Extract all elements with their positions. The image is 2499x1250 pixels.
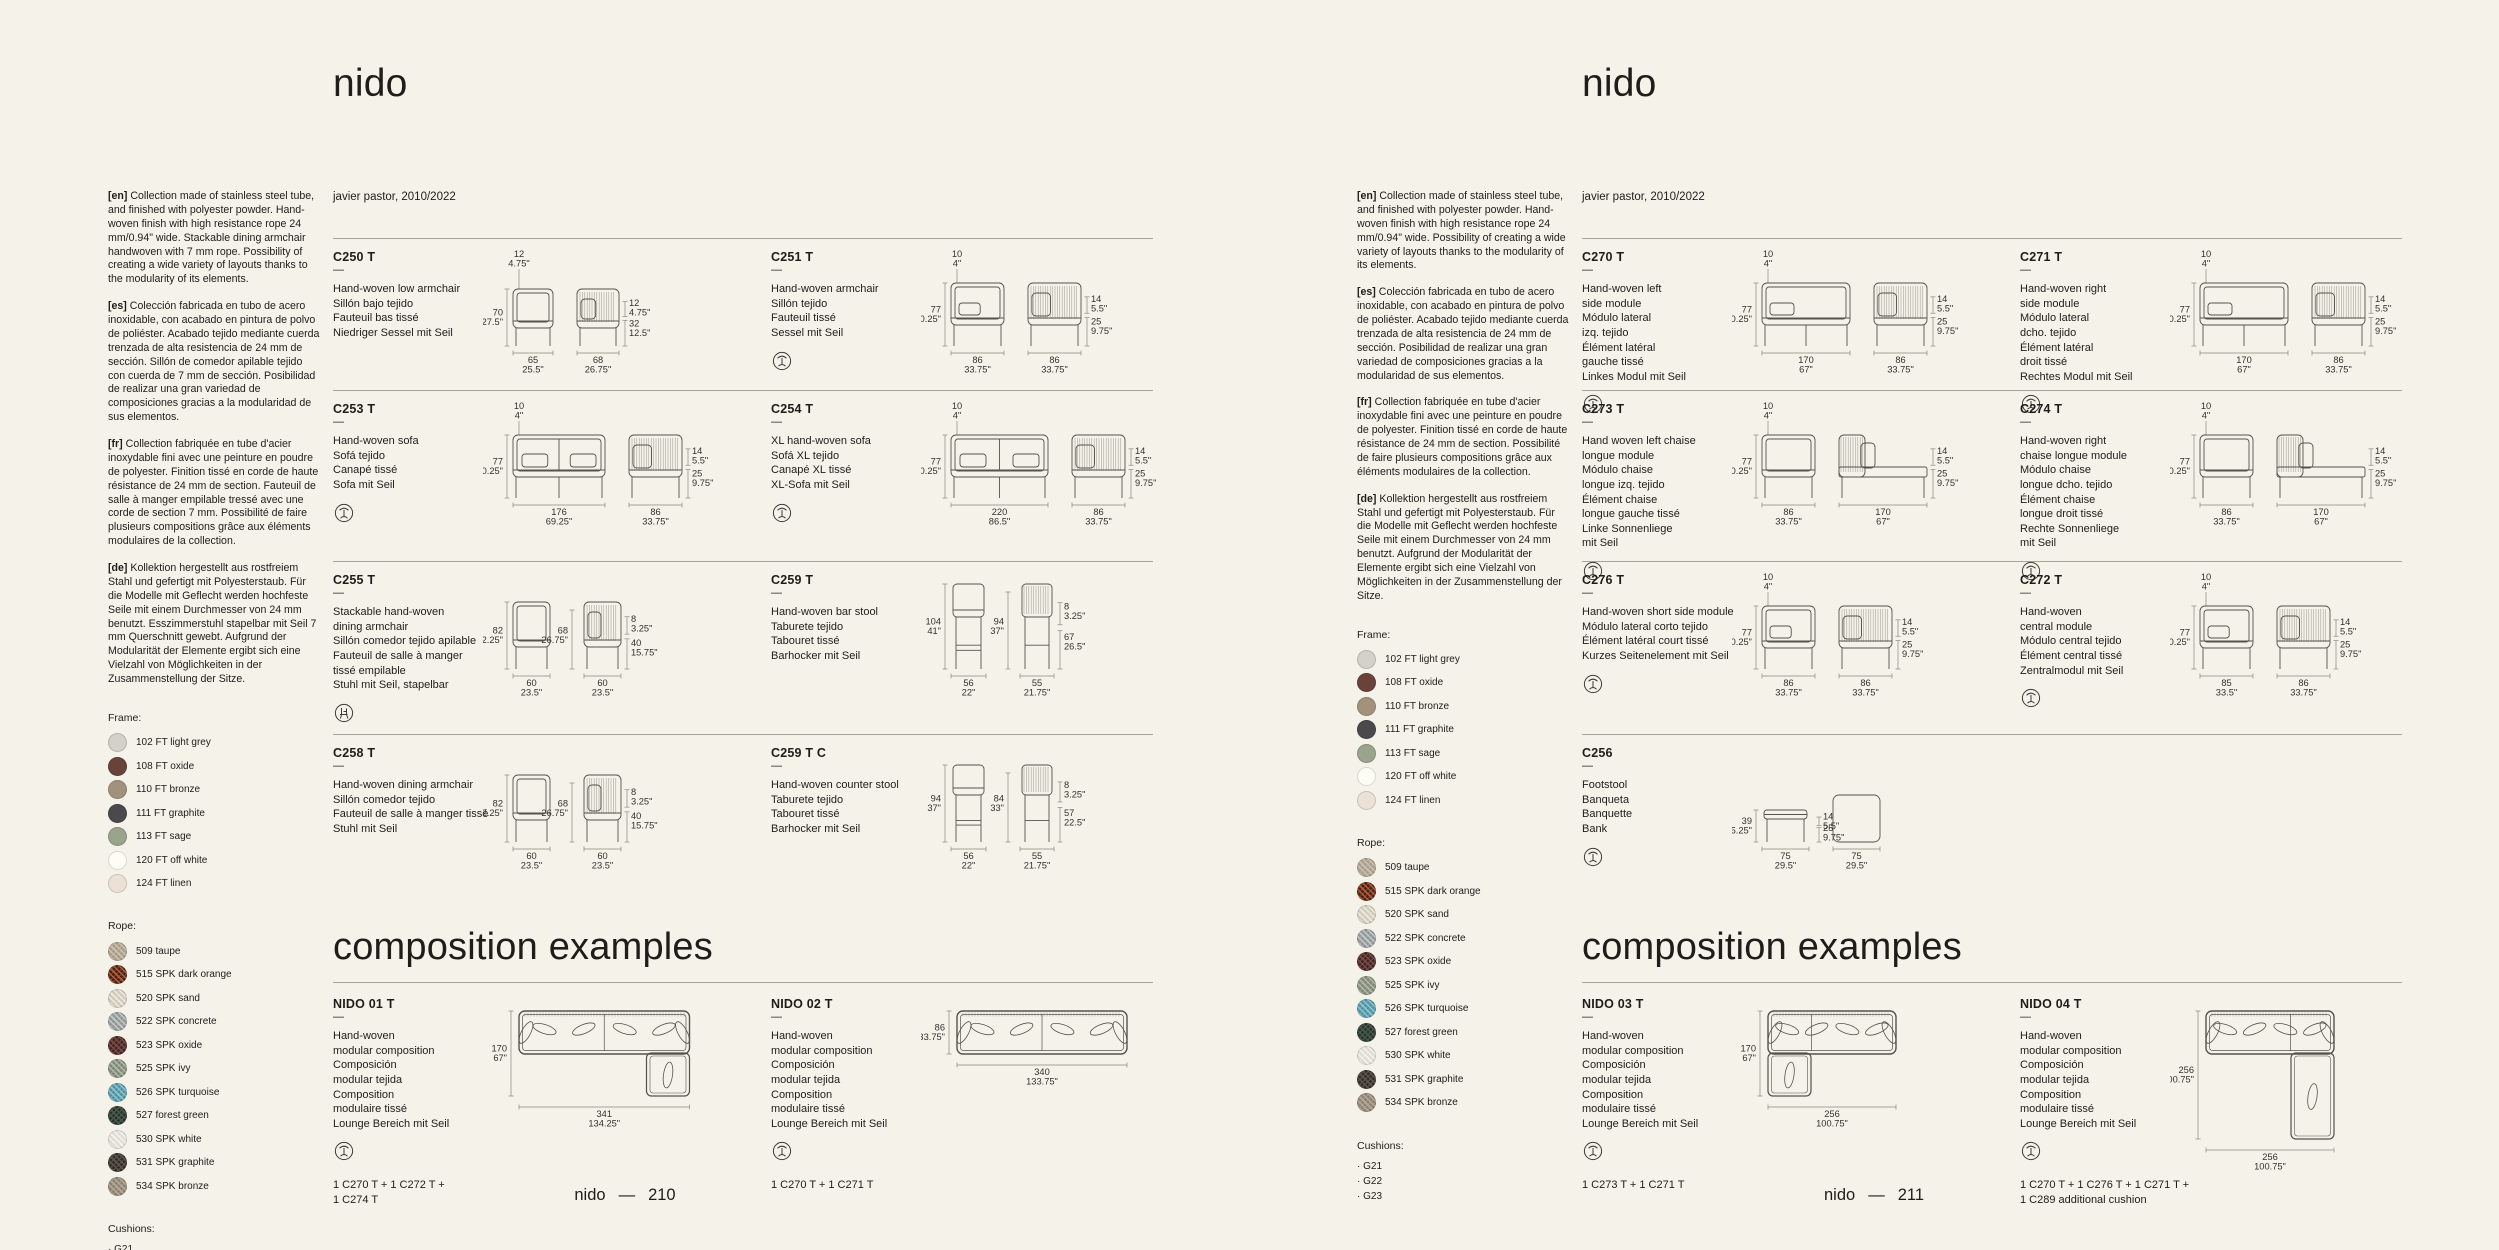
product-diagram: 7730.25"104"145.5"259.75"17669.25"8633.7… <box>483 402 724 530</box>
frame-swatch-color <box>108 757 127 776</box>
product-description-line: Taburete tejido <box>771 620 921 635</box>
dim-label: 83.25" <box>1064 780 1085 800</box>
product-code: C250 T <box>333 250 483 264</box>
dim-label: 145.5" <box>1902 617 1918 637</box>
rope-swatch-color <box>1357 858 1376 877</box>
composition-description-line: Lounge Bereich mit Seil <box>1582 1117 1732 1132</box>
dim-label: 259.75" <box>1937 469 1958 489</box>
swatch-label: 509 taupe <box>1385 862 1430 873</box>
dim-label: 17067" <box>1798 355 1814 375</box>
composition-description-line: Hand-woven <box>1582 1029 1732 1044</box>
product-description-line: Hand-woven armchair <box>771 282 921 297</box>
outdoor-feature <box>771 1140 921 1162</box>
dim-label: 8232.25" <box>483 626 503 646</box>
intro-text: Kollektion hergestellt aus rostfreiem St… <box>1357 493 1562 602</box>
frame-swatch-color <box>1357 767 1376 786</box>
dim-label: 340133.75" <box>1026 1067 1058 1087</box>
swatch-label: 523 SPK oxide <box>1385 956 1451 967</box>
product-cell: C253 T—Hand-woven sofaSofá tejidoCanapé … <box>333 402 771 561</box>
product-rows: C270 T—Hand-woven leftside moduleMódulo … <box>1582 238 2402 912</box>
swatch-row: 113 FT sage <box>1357 742 1569 766</box>
swatch-label: 531 SPK graphite <box>136 1157 214 1168</box>
dim-label: 104" <box>952 250 962 269</box>
swatch-row: 509 taupe <box>108 939 320 963</box>
product-description-line: Hand woven left chaise <box>1582 434 1732 449</box>
outdoor-feature <box>771 350 921 372</box>
rope-swatch-color <box>108 1083 127 1102</box>
product-cell: C272 T—Hand-wovencentral moduleMódulo ce… <box>2020 573 2402 734</box>
swatch-label: 124 FT linen <box>136 878 191 889</box>
composition-cell: NIDO 03 T—Hand-wovenmodular compositionC… <box>1582 997 2020 1208</box>
product-description-line: chaise longue module <box>2020 449 2170 464</box>
footer-page-number: 211 <box>1898 1186 1924 1204</box>
product-diagram-area: 7730.25"104"145.5"259.75"17067"8633.75" <box>1732 250 2020 390</box>
product-description-line: longue dcho. tejido <box>2020 478 2170 493</box>
swatch-label: 110 FT bronze <box>1385 701 1449 712</box>
product-description-line: Élément chaise <box>2020 493 2170 508</box>
swatch-row: 124 FT linen <box>108 872 320 896</box>
product-cell: C254 T—XL hand-woven sofaSofá XL tejidoC… <box>771 402 1153 561</box>
product-diagram: 7730.25"104"145.5"259.75"8633.75"8633.75… <box>1732 573 1934 701</box>
dim-label: 104" <box>1763 250 1773 269</box>
dim-label: 5622" <box>962 678 976 698</box>
dim-label: 8633.75" <box>1775 507 1802 527</box>
swatch-row: 534 SPK bronze <box>1357 1091 1569 1115</box>
dim-label: 6023.5" <box>592 678 613 698</box>
product-description-line: dining armchair <box>333 620 483 635</box>
intro-paragraph: [es] Colección fabricada en tubo de acer… <box>108 300 320 425</box>
dim-label: 5521.75" <box>1024 851 1051 871</box>
byline: javier pastor, 2010/2022 <box>333 191 1153 238</box>
dim-label: 145.5" <box>2375 294 2391 314</box>
composition-description-line: Composición <box>1582 1058 1732 1073</box>
product-dash: — <box>771 416 921 428</box>
swatch-label: 525 SPK ivy <box>136 1063 190 1074</box>
intro-language-tag: [es] <box>1357 286 1376 298</box>
product-description-line: Sofá XL tejido <box>771 449 921 464</box>
composition-description-line: Hand-woven <box>333 1029 483 1044</box>
frame-swatch-list: 102 FT light grey108 FT oxide110 FT bron… <box>108 731 320 896</box>
product-description-line: Canapé XL tissé <box>771 463 921 478</box>
rope-swatch-color <box>108 965 127 984</box>
composition-description-line: modular composition <box>2020 1044 2170 1059</box>
product-description-line: Módulo chaise <box>2020 463 2170 478</box>
product-diagram-area: 7027.5"124.75"124.75"3212.5"6525.5"6826.… <box>483 250 771 390</box>
dim-label: 8633.75" <box>1041 355 1068 375</box>
composition-description-line: Composición <box>2020 1058 2170 1073</box>
product-description-line: Stackable hand-woven <box>333 605 483 620</box>
swatch-row: 520 SPK sand <box>1357 903 1569 927</box>
composition-description-line: Lounge Bereich mit Seil <box>2020 1117 2170 1132</box>
cushions-label: Cushions: <box>1357 1140 1569 1152</box>
rope-swatch-color <box>1357 1070 1376 1089</box>
dim-label: 4015.75" <box>631 638 658 658</box>
product-diagram-area: 7730.25"104"145.5"259.75"17067"8633.75" <box>2170 250 2407 390</box>
product-code: C251 T <box>771 250 921 264</box>
product-description-line: Élément chaise <box>1582 493 1732 508</box>
dim-label: 3212.5" <box>629 319 650 339</box>
swatch-row: 113 FT sage <box>108 825 320 849</box>
intro-language-tag: [fr] <box>1357 396 1372 408</box>
swatch-label: 526 SPK turquoise <box>1385 1003 1468 1014</box>
swatch-label: 527 forest green <box>1385 1027 1458 1038</box>
frame-label: Frame: <box>1357 629 1569 641</box>
product-dash: — <box>1582 760 1732 772</box>
rope-swatch-color <box>108 989 127 1008</box>
composition-dash: — <box>771 1011 921 1023</box>
intro-paragraph: [de] Kollektion hergestellt aus rostfrei… <box>108 562 320 687</box>
product-description-line: Élément central tissé <box>2020 649 2170 664</box>
rope-swatch-list: 509 taupe515 SPK dark orange520 SPK sand… <box>108 939 320 1198</box>
product-info: C254 T—XL hand-woven sofaSofá XL tejidoC… <box>771 402 921 561</box>
product-cell: C255 T—Stackable hand-wovendining armcha… <box>333 573 771 734</box>
swatch-label: 526 SPK turquoise <box>136 1087 219 1098</box>
product-description-line: droit tissé <box>2020 355 2170 370</box>
composition-info: NIDO 04 T—Hand-wovenmodular compositionC… <box>2020 997 2170 1208</box>
dim-label: 7730.25" <box>921 305 941 325</box>
composition-diagram-area: 17067"256100.75" <box>1732 997 2020 1208</box>
product-dash: — <box>1582 264 1732 276</box>
composition-plan-diagram: 17067"341134.25" <box>483 997 708 1140</box>
product-description-line: Tabouret tissé <box>771 634 921 649</box>
byline: javier pastor, 2010/2022 <box>1582 191 2402 238</box>
product-description-line: side module <box>2020 297 2170 312</box>
composition-code: NIDO 03 T <box>1582 997 1732 1011</box>
product-cell: C259 T—Hand-woven bar stoolTaburete teji… <box>771 573 1153 734</box>
intro-language-tag: [en] <box>1357 190 1376 202</box>
product-code: C254 T <box>771 402 921 416</box>
composition-description-line: modulaire tissé <box>771 1102 921 1117</box>
swatch-row: 525 SPK ivy <box>108 1057 320 1081</box>
dim-label: 259.75" <box>2375 317 2396 337</box>
sidebar: [en] Collection made of stainless steel … <box>1357 190 1569 1204</box>
product-description-line: Hand-woven <box>2020 605 2170 620</box>
swatch-row: 120 FT off white <box>108 848 320 872</box>
footer-page-number: 210 <box>648 1186 676 1204</box>
composition-heading: composition examples <box>333 926 1153 969</box>
product-cell: C270 T—Hand-woven leftside moduleMódulo … <box>1582 250 2020 390</box>
composition-description-line: Composition <box>2020 1088 2170 1103</box>
stackable-feature <box>333 702 483 724</box>
dim-label: 259.75" <box>2340 640 2361 660</box>
product-description-line: XL hand-woven sofa <box>771 434 921 449</box>
dim-label: 7027.5" <box>483 308 503 328</box>
product-description-line: Sillón comedor tejido apilable <box>333 634 483 649</box>
intro-language-tag: [en] <box>108 190 127 202</box>
product-info: C273 T—Hand woven left chaiselongue modu… <box>1582 402 1732 561</box>
dim-label: 5722.5" <box>1064 808 1085 828</box>
dim-label: 145.5" <box>2340 617 2356 637</box>
composition-description-line: Lounge Bereich mit Seil <box>771 1117 921 1132</box>
product-diagram-area: 9437"8433"83.25"5722.5"5622"5521.75" <box>921 746 1153 912</box>
intro-language-tag: [de] <box>108 562 127 574</box>
dim-label: 259.75" <box>1091 317 1112 337</box>
composition-diagram-area: 256100.75"256100.75" <box>2170 997 2402 1208</box>
dim-label: 8633.75" <box>1085 507 1112 527</box>
swatch-row: 530 SPK white <box>108 1127 320 1151</box>
product-dash: — <box>771 760 921 772</box>
composition-dash: — <box>2020 1011 2170 1023</box>
covered-outdoor-icon <box>1582 1140 1604 1162</box>
product-code: C276 T <box>1582 573 1732 587</box>
dim-label: 22086.5" <box>989 507 1010 527</box>
swatch-row: 120 FT off white <box>1357 765 1569 789</box>
intro-text: Collection fabriquée en tube d'acier ino… <box>108 438 318 547</box>
product-diagram: 7730.25"104"145.5"259.75"8633.75"17067" <box>1732 402 1969 530</box>
rope-swatch-color <box>108 942 127 961</box>
intro-paragraph: [en] Collection made of stainless steel … <box>1357 190 1569 273</box>
intro-paragraphs: [en] Collection made of stainless steel … <box>108 190 320 687</box>
swatch-label: 124 FT linen <box>1385 795 1440 806</box>
frame-swatch-color <box>108 804 127 823</box>
product-description-line: Stuhl mit Seil <box>333 822 483 837</box>
product-description-line: Sofa mit Seil <box>333 478 483 493</box>
product-description-line: longue module <box>1582 449 1732 464</box>
covered-outdoor-icon <box>1582 673 1604 695</box>
dim-label: 17669.25" <box>546 507 573 527</box>
swatch-row: 527 forest green <box>108 1104 320 1128</box>
dim-label: 259.75" <box>1902 640 1923 660</box>
swatch-label: 531 SPK graphite <box>1385 1074 1463 1085</box>
swatch-label: 530 SPK white <box>1385 1050 1451 1061</box>
composition-description-line: Composition <box>771 1088 921 1103</box>
swatch-label: 113 FT sage <box>136 831 191 842</box>
swatch-row: 102 FT light grey <box>108 731 320 755</box>
product-description-line: Footstool <box>1582 778 1732 793</box>
rope-swatch-color <box>1357 1023 1376 1042</box>
dim-label: 145.5" <box>1937 446 1953 466</box>
composition-code: NIDO 04 T <box>2020 997 2170 1011</box>
product-diagram: 7730.25"104"145.5"259.75"17067"8633.75" <box>1732 250 1969 378</box>
dim-label: 7730.25" <box>2170 305 2190 325</box>
intro-paragraph: [fr] Collection fabriquée en tube d'acie… <box>108 438 320 549</box>
product-diagram: 7730.25"104"145.5"259.75"8633.75"8633.75… <box>921 250 1123 378</box>
outdoor-feature <box>771 502 921 524</box>
composition-heading: composition examples <box>1582 926 2402 969</box>
rope-swatch-color <box>108 1106 127 1125</box>
dim-label: 9437" <box>990 617 1004 637</box>
rope-swatch-color <box>108 1059 127 1078</box>
dim-label: 7529.5" <box>1775 851 1796 871</box>
covered-outdoor-icon <box>2020 687 2042 709</box>
swatch-row: 102 FT light grey <box>1357 648 1569 672</box>
composition-description-line: modulaire tissé <box>1582 1102 1732 1117</box>
composition-dash: — <box>1582 1011 1732 1023</box>
dim-label: 256100.75" <box>1816 1109 1848 1129</box>
composition-info: NIDO 02 T—Hand-wovenmodular compositionC… <box>771 997 921 1208</box>
intro-text: Colección fabricada en tubo de acero ino… <box>1357 286 1568 381</box>
rope-swatch-color <box>1357 999 1376 1018</box>
product-info: C270 T—Hand-woven leftside moduleMódulo … <box>1582 250 1732 390</box>
dim-label: 6525.5" <box>522 355 543 375</box>
intro-language-tag: [es] <box>108 300 127 312</box>
swatch-label: 522 SPK concrete <box>1385 933 1466 944</box>
intro-paragraph: [fr] Collection fabriquée en tube d'acie… <box>1357 396 1569 479</box>
product-description-line: izq. tejido <box>1582 326 1732 341</box>
composition-description-line: modular composition <box>771 1044 921 1059</box>
page-title: nido <box>333 62 408 106</box>
composition-description-line: modular tejida <box>771 1073 921 1088</box>
product-description-line: Hand-woven low armchair <box>333 282 483 297</box>
product-info: C271 T—Hand-woven rightside moduleMódulo… <box>2020 250 2170 390</box>
product-diagram-area: 10441"9437"83.25"6726.5"5622"5521.75" <box>921 573 1153 734</box>
dim-label: 8633.75" <box>1852 678 1879 698</box>
product-cell: C259 T C—Hand-woven counter stoolTaburet… <box>771 746 1153 912</box>
product-cell: C251 T—Hand-woven armchairSillón tejidoF… <box>771 250 1153 390</box>
product-description-line: Fauteuil de salle à manger tissé <box>333 807 483 822</box>
product-description-line: Sofá tejido <box>333 449 483 464</box>
rope-swatch-color <box>1357 1046 1376 1065</box>
dim-label: 8633.75" <box>642 507 669 527</box>
product-cell: C273 T—Hand woven left chaiselongue modu… <box>1582 402 2020 561</box>
swatch-row: 509 taupe <box>1357 856 1569 880</box>
swatch-row: 526 SPK turquoise <box>1357 997 1569 1021</box>
composition-row: NIDO 03 T—Hand-wovenmodular compositionC… <box>1582 982 2402 1208</box>
composition-plan-diagram: 256100.75"256100.75" <box>2170 997 2352 1183</box>
swatch-label: 108 FT oxide <box>136 761 194 772</box>
product-dash: — <box>771 264 921 276</box>
product-diagram: 7730.25"104"145.5"259.75"8533.5"8633.75" <box>2170 573 2372 701</box>
dim-label: 8633.75" <box>2290 678 2317 698</box>
dim-label: 341134.25" <box>588 1109 620 1129</box>
product-diagram: 3915.25"145.5"259.75"7529.5"7529.5" <box>1732 746 1922 874</box>
page-footer: nido—210 <box>0 1186 1250 1205</box>
outdoor-feature <box>2020 1140 2170 1162</box>
product-description-line: XL-Sofa mit Seil <box>771 478 921 493</box>
product-description-line: Fauteuil tissé <box>771 311 921 326</box>
intro-text: Collection made of stainless steel tube,… <box>108 190 314 285</box>
dim-label: 8633.75" <box>921 1023 945 1043</box>
dim-label: 8533.5" <box>2216 678 2237 698</box>
swatch-row: 111 FT graphite <box>108 801 320 825</box>
product-diagram-area: 7730.25"104"145.5"259.75"8633.75"8633.75… <box>921 250 1153 390</box>
rope-swatch-color <box>1357 882 1376 901</box>
frame-swatch-color <box>108 780 127 799</box>
composition-description-line: Composición <box>333 1058 483 1073</box>
product-info: C250 T—Hand-woven low armchairSillón baj… <box>333 250 483 390</box>
dim-label: 104" <box>2201 250 2211 269</box>
composition-description-line: modular composition <box>1582 1044 1732 1059</box>
product-description-line: Hand-woven left <box>1582 282 1732 297</box>
product-row: C250 T—Hand-woven low armchairSillón baj… <box>333 238 1153 390</box>
product-description-line: Linke Sonnenliege <box>1582 522 1732 537</box>
product-description-line: Barhocker mit Seil <box>771 822 921 837</box>
product-description-line: Banqueta <box>1582 793 1732 808</box>
dim-label: 104" <box>1763 573 1773 592</box>
product-dash: — <box>1582 416 1732 428</box>
dim-label: 8633.75" <box>2213 507 2240 527</box>
dim-label: 7730.25" <box>2170 457 2190 477</box>
footer-collection: nido <box>574 1186 605 1204</box>
swatch-row: 110 FT bronze <box>1357 695 1569 719</box>
composition-code: NIDO 01 T <box>333 997 483 1011</box>
rope-swatch-color <box>108 1130 127 1149</box>
product-cell: C274 T—Hand-woven rightchaise longue mod… <box>2020 402 2402 561</box>
composition-description-line: modular tejida <box>333 1073 483 1088</box>
product-description-line: Élément latéral <box>2020 341 2170 356</box>
composition-description-line: Lounge Bereich mit Seil <box>333 1117 483 1132</box>
product-description-line: Sillón bajo tejido <box>333 297 483 312</box>
product-description-line: longue droit tissé <box>2020 507 2170 522</box>
product-info: C274 T—Hand-woven rightchaise longue mod… <box>2020 402 2170 561</box>
rope-swatch-list: 509 taupe515 SPK dark orange520 SPK sand… <box>1357 856 1569 1115</box>
swatch-label: 515 SPK dark orange <box>136 969 232 980</box>
product-description-line: gauche tissé <box>1582 355 1732 370</box>
product-diagram: 10441"9437"83.25"6726.5"5622"5521.75" <box>921 573 1096 701</box>
intro-paragraph: [es] Colección fabricada en tubo de acer… <box>1357 286 1569 383</box>
intro-paragraph: [de] Kollektion hergestellt aus rostfrei… <box>1357 493 1569 604</box>
product-description-line: Hand-woven right <box>2020 434 2170 449</box>
product-description-line: Módulo lateral <box>2020 311 2170 326</box>
product-diagram-area: 7730.25"104"145.5"259.75"8633.75"8633.75… <box>1732 573 2020 734</box>
intro-language-tag: [de] <box>1357 493 1376 505</box>
product-diagram-area: 7730.25"104"145.5"259.75"8633.75"17067" <box>2170 402 2407 561</box>
product-rows: C250 T—Hand-woven low armchairSillón baj… <box>333 238 1153 912</box>
product-description-line: Stuhl mit Seil, stapelbar <box>333 678 483 693</box>
composition-info: NIDO 03 T—Hand-wovenmodular compositionC… <box>1582 997 1732 1208</box>
rope-label: Rope: <box>108 920 320 932</box>
outdoor-feature <box>333 502 483 524</box>
dim-label: 17067" <box>1740 1044 1756 1064</box>
composition-plan-diagram: 8633.75"340133.75" <box>921 997 1145 1098</box>
dim-label: 7730.25" <box>921 457 941 477</box>
rope-swatch-color <box>108 1153 127 1172</box>
swatch-label: 522 SPK concrete <box>136 1016 217 1027</box>
dim-label: 256100.75" <box>2254 1152 2286 1172</box>
composition-description-line: Composition <box>1582 1088 1732 1103</box>
dim-label: 9437" <box>927 794 941 814</box>
intro-text: Collection made of stainless steel tube,… <box>1357 190 1566 271</box>
dim-label: 6023.5" <box>521 851 542 871</box>
product-code: C256 <box>1582 746 1732 760</box>
cushion-code: · G21 <box>1357 1159 1569 1174</box>
product-cell: C276 T—Hand-woven short side moduleMódul… <box>1582 573 2020 734</box>
composition-code: NIDO 02 T <box>771 997 921 1011</box>
product-info: C253 T—Hand-woven sofaSofá tejidoCanapé … <box>333 402 483 561</box>
composition-plan-diagram: 17067"256100.75" <box>1732 997 1914 1140</box>
dim-label: 17067" <box>2236 355 2252 375</box>
product-description-line: Módulo lateral corto tejido <box>1582 620 1732 635</box>
product-description-line: Hand-woven right <box>2020 282 2170 297</box>
outdoor-feature <box>1582 673 1732 695</box>
cushions-label: Cushions: <box>108 1223 320 1235</box>
frame-swatch-color <box>1357 720 1376 739</box>
product-row: C276 T—Hand-woven short side moduleMódul… <box>1582 561 2402 734</box>
stackable-icon <box>333 702 355 724</box>
swatch-label: 120 FT off white <box>136 855 207 866</box>
page-right: nido [en] Collection made of stainless s… <box>1249 0 2499 1250</box>
product-dash: — <box>333 587 483 599</box>
product-row: C256—FootstoolBanquetaBanquetteBank3915.… <box>1582 734 2402 912</box>
swatch-row: 108 FT oxide <box>1357 671 1569 695</box>
swatch-label: 525 SPK ivy <box>1385 980 1439 991</box>
product-diagram-area: 7730.25"104"145.5"259.75"22086.5"8633.75… <box>921 402 1167 561</box>
swatch-label: 102 FT light grey <box>136 737 211 748</box>
product-description-line: Taburete tejido <box>771 793 921 808</box>
dim-label: 145.5" <box>1091 294 1107 314</box>
product-diagram-area: 8232.25"6826.75"83.25"4015.75"6023.5"602… <box>483 573 771 734</box>
swatch-row: 520 SPK sand <box>108 986 320 1010</box>
product-description-line: Fauteuil de salle à manger <box>333 649 483 664</box>
product-description-line: Élément latéral court tissé <box>1582 634 1732 649</box>
dim-label: 8433" <box>990 794 1004 814</box>
product-description-line: side module <box>1582 297 1732 312</box>
product-description-line: Sessel mit Seil <box>771 326 921 341</box>
composition-description-line: modular tejida <box>1582 1073 1732 1088</box>
product-cell: C250 T—Hand-woven low armchairSillón baj… <box>333 250 771 390</box>
intro-text: Colección fabricada en tubo de acero ino… <box>108 300 319 423</box>
product-description-line: Banquette <box>1582 807 1732 822</box>
